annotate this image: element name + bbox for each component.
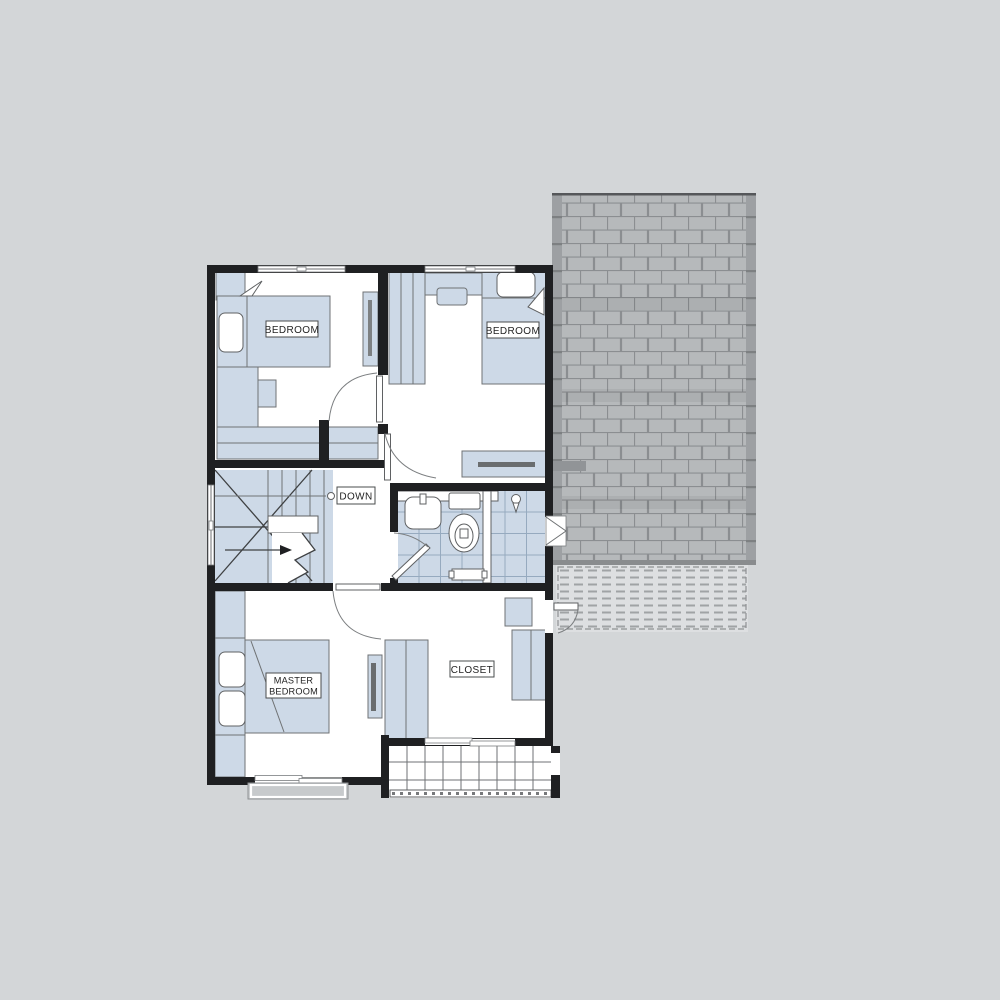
- wall-bedroom-left-south: [207, 460, 388, 468]
- bath-mat-end: [449, 571, 454, 578]
- faucet: [420, 494, 426, 504]
- label-bedroom-right: BEDROOM: [486, 322, 540, 338]
- desk: [217, 367, 258, 427]
- roof-shingle-field: [552, 193, 756, 565]
- roof-step: [553, 461, 586, 471]
- window-closet-south: [425, 738, 515, 746]
- shower-head-icon: [512, 495, 521, 504]
- wall-stair-pier: [319, 420, 329, 468]
- pillow: [497, 272, 535, 297]
- bath-mat-end: [482, 571, 487, 578]
- toilet-tank: [449, 493, 480, 509]
- dresser-long-top: [217, 427, 378, 443]
- roof-shingled: [552, 193, 756, 565]
- desk-chair: [437, 288, 467, 305]
- down-label: DOWN: [339, 492, 372, 503]
- window-stairs-left: [208, 485, 214, 565]
- label-master-bedroom: MASTER BEDROOM: [266, 673, 321, 698]
- wall-bathroom-west-upper: [390, 483, 398, 532]
- bedroom-left-label: BEDROOM: [265, 325, 319, 336]
- roof-shade-row: [552, 297, 756, 310]
- wall-balcony-west: [381, 735, 389, 798]
- roof-edge-right: [746, 193, 756, 565]
- window-planter: [248, 783, 348, 799]
- bedroom-right-label: BEDROOM: [486, 326, 540, 337]
- balcony-east-opening: [551, 753, 560, 775]
- lower-roof-dashes: [558, 567, 746, 630]
- wall-stairs-south: [207, 583, 333, 591]
- wall-right: [545, 265, 553, 746]
- wall-divider-stub: [378, 424, 388, 434]
- roof-eave-line: [552, 560, 756, 565]
- tv: [371, 663, 376, 711]
- roof-edge-left: [552, 193, 562, 565]
- toilet-flush: [460, 529, 468, 538]
- master-label-line2: BEDROOM: [269, 687, 318, 697]
- storage-box: [505, 598, 532, 626]
- wall-bedroom-divider: [378, 265, 388, 375]
- master-label-line1: MASTER: [274, 676, 314, 686]
- pillow: [219, 652, 245, 687]
- window-bedroom-right: [425, 266, 515, 272]
- roof-shade-row: [552, 389, 756, 402]
- roof-ridge-line: [552, 193, 756, 196]
- wall-hall-stub: [381, 583, 390, 591]
- wall-bathroom-north: [390, 483, 553, 491]
- tv: [478, 462, 535, 467]
- dresser-long-bottom: [217, 443, 378, 459]
- desk-chair: [258, 380, 276, 407]
- floorplan-canvas: BEDROOM BEDROOM MASTER BEDROOM CLOSET DO…: [0, 0, 1000, 1000]
- label-bedroom-left: BEDROOM: [265, 321, 319, 337]
- down-leader-dot: [328, 493, 335, 500]
- roof-lower-dashed: [556, 565, 748, 632]
- window-bathroom-east: [545, 516, 566, 546]
- roof-shade-row: [552, 496, 756, 509]
- wall-bathroom-south: [390, 583, 553, 591]
- pillow: [219, 313, 243, 352]
- floor-plan-drawing: BEDROOM BEDROOM MASTER BEDROOM CLOSET DO…: [0, 0, 1000, 1000]
- balcony-railing: [390, 790, 551, 797]
- pillow: [219, 691, 245, 726]
- stair-landing: [268, 516, 318, 533]
- label-closet: CLOSET: [450, 661, 494, 677]
- bath-mat: [452, 569, 484, 580]
- mirror-glass: [368, 300, 372, 356]
- wardrobe: [389, 271, 425, 384]
- window-bedroom-left: [258, 266, 345, 272]
- closet-label: CLOSET: [451, 665, 493, 676]
